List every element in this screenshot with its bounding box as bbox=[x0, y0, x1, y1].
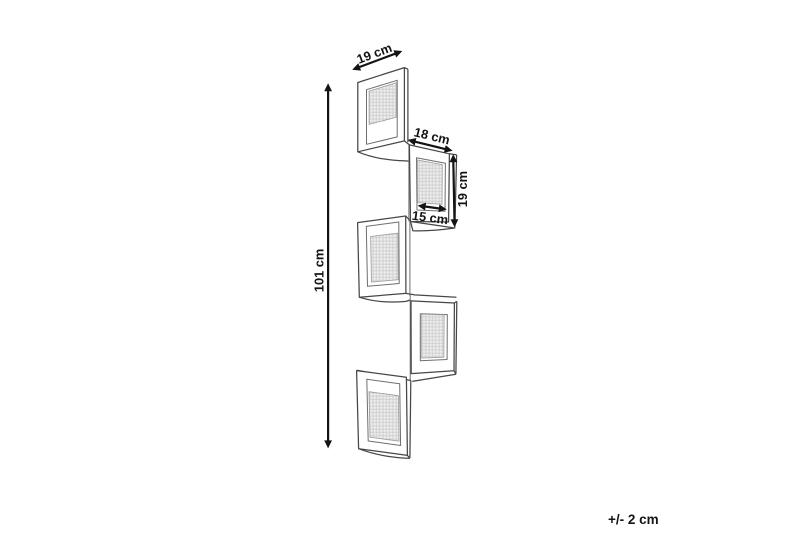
svg-text:18 cm: 18 cm bbox=[413, 124, 452, 147]
svg-text:19 cm: 19 cm bbox=[355, 40, 394, 67]
svg-text:19 cm: 19 cm bbox=[455, 171, 470, 207]
svg-text:101 cm: 101 cm bbox=[312, 249, 327, 292]
